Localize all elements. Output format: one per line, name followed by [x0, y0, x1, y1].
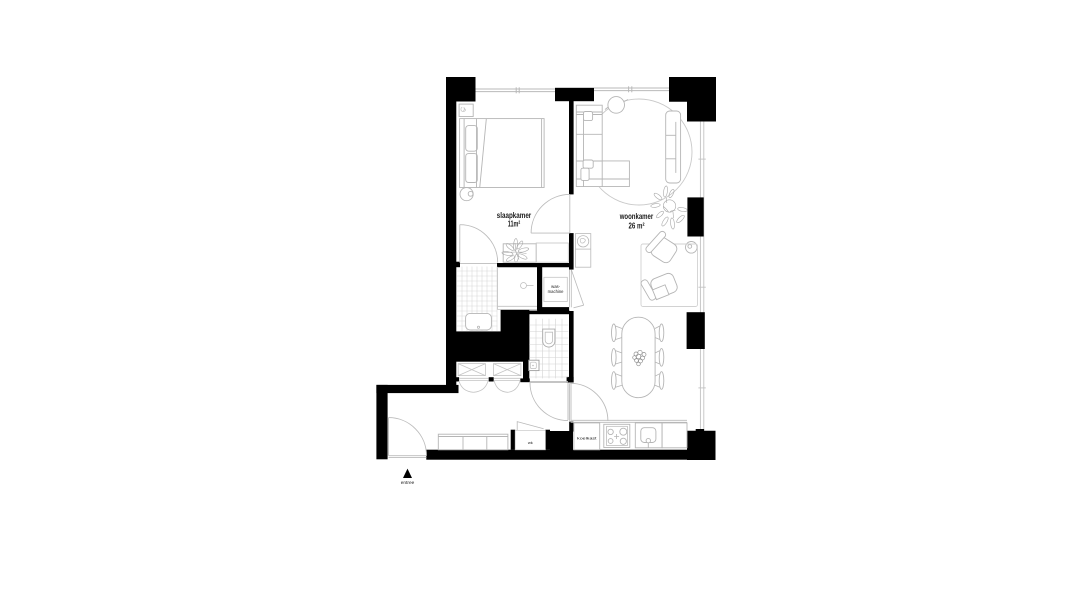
svg-text:11m²: 11m² — [508, 220, 521, 229]
svg-text:koelkast: koelkast — [577, 436, 598, 441]
svg-text:woonkamer: woonkamer — [619, 212, 653, 221]
svg-text:machine: machine — [548, 289, 564, 294]
svg-text:entree: entree — [401, 480, 415, 485]
svg-text:26 m²: 26 m² — [629, 222, 645, 231]
svg-text:wk: wk — [528, 440, 533, 445]
